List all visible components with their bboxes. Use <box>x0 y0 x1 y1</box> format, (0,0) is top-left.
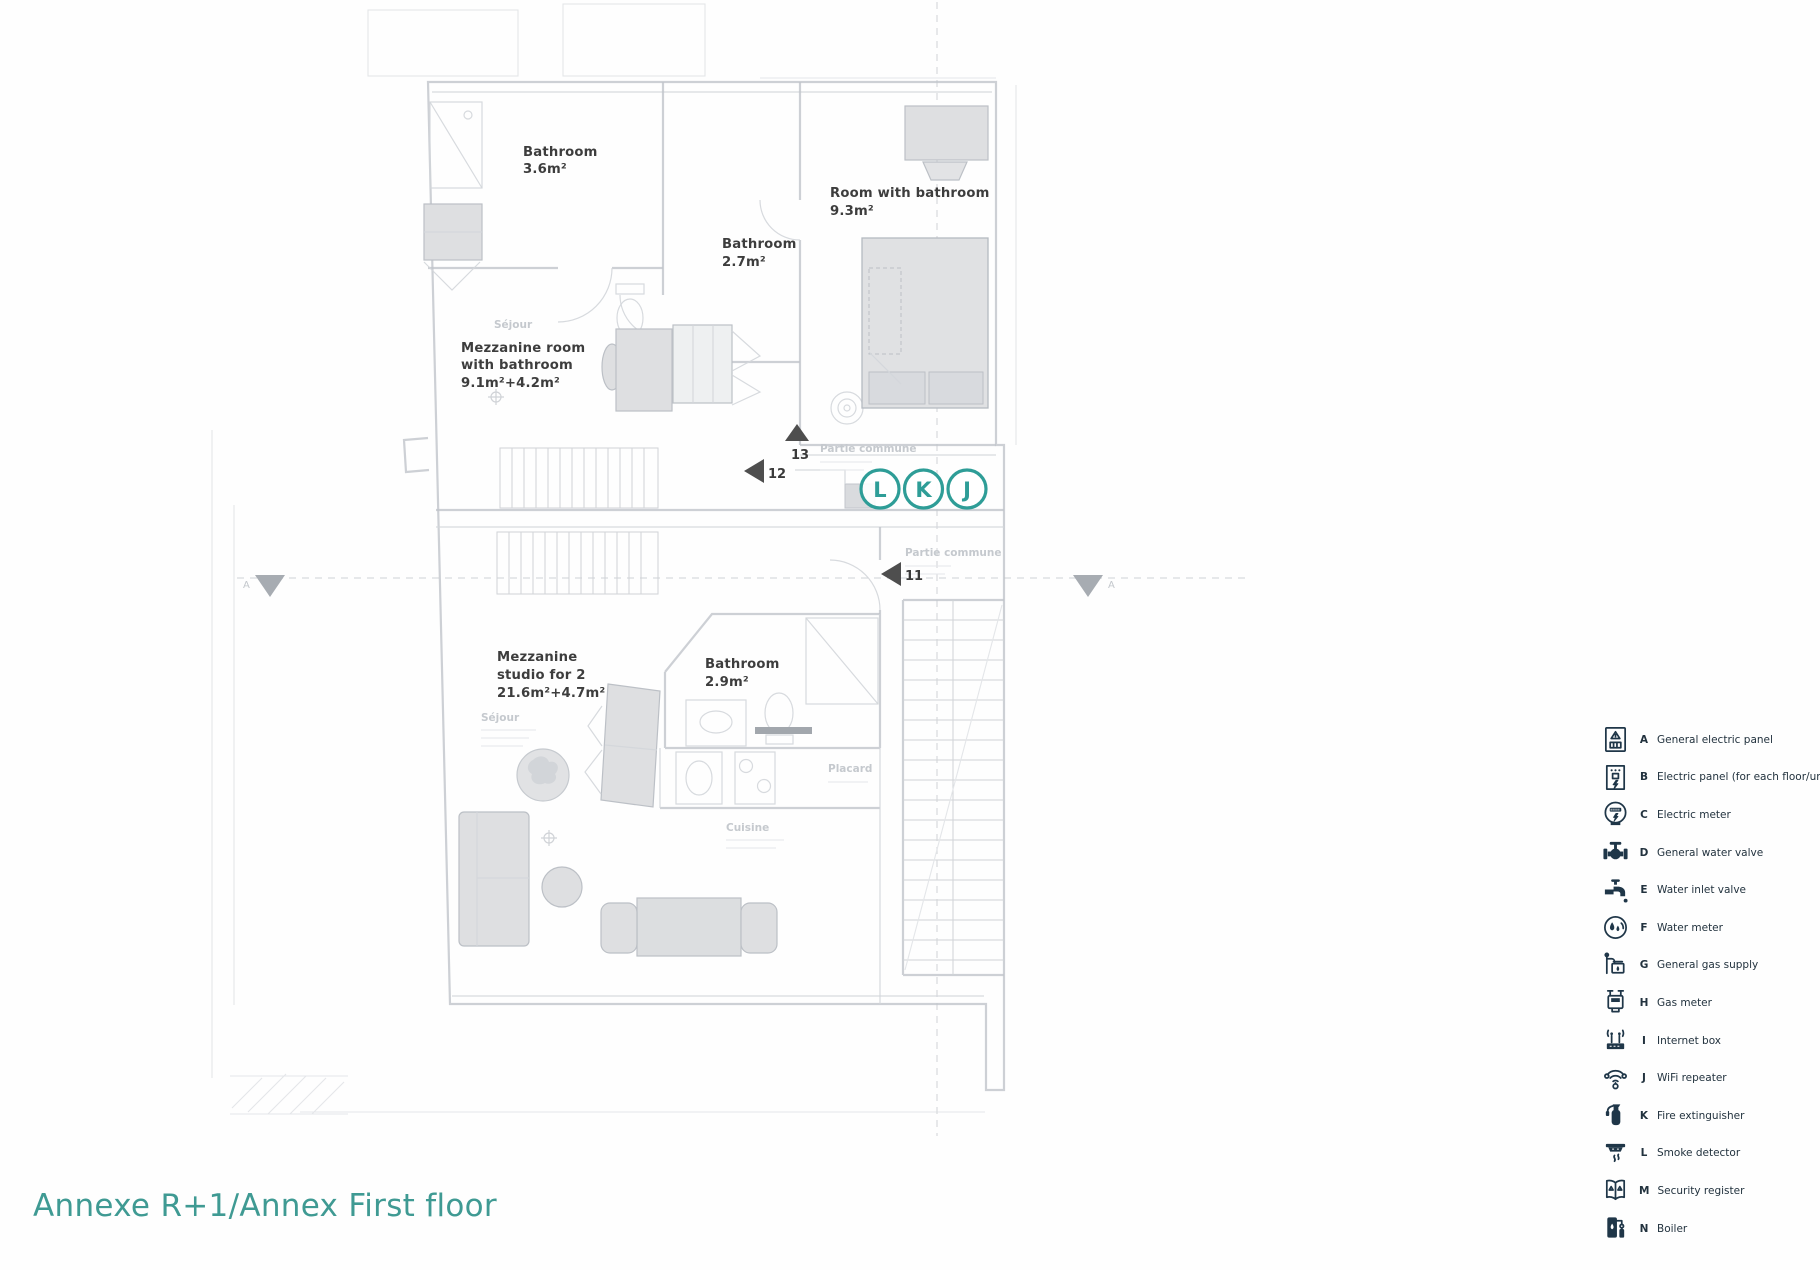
legend-letter: A <box>1639 734 1649 746</box>
axis-lines <box>237 2 1250 1136</box>
room-label-room-with-bathroom: Room with bathroom 9.3m² <box>830 186 990 219</box>
staircase-upper <box>500 448 658 508</box>
dining-table-and-chairs <box>601 898 777 956</box>
rug-with-armchair <box>517 749 569 801</box>
wifi-repeater-icon <box>1598 1064 1632 1093</box>
desk-and-bed-mezzanine-room <box>602 325 760 411</box>
legend-row-fire-extinguisher: K Fire extinguisher <box>1598 1097 1813 1135</box>
legend-letter: E <box>1639 884 1649 896</box>
fire-extinguisher-icon <box>1598 1101 1632 1130</box>
legend-label: WiFi repeater <box>1657 1072 1727 1084</box>
legend-label: Boiler <box>1657 1223 1687 1235</box>
legend-letter: I <box>1639 1035 1649 1047</box>
svg-text:studio for 2: studio for 2 <box>497 668 586 683</box>
marker-12-label: 12 <box>768 467 786 482</box>
general-gas-supply-icon <box>1598 951 1632 980</box>
sofa <box>459 812 529 946</box>
electric-panel-icon <box>1598 763 1632 792</box>
legend-label: Fire extinguisher <box>1657 1110 1744 1122</box>
legend-row-gas-meter: H Gas meter <box>1598 984 1813 1022</box>
svg-text:L: L <box>873 478 886 502</box>
svg-text:21.6m²+4.7m²: 21.6m²+4.7m² <box>497 686 605 701</box>
marker-11-triangle-icon <box>881 562 901 586</box>
faint-label-sejour-1: Séjour <box>494 319 533 331</box>
side-stool <box>542 867 582 907</box>
legend-row-general-water-valve: D General water valve <box>1598 834 1813 872</box>
faint-label-partie-commune-1: Partie commune <box>820 443 916 455</box>
marker-13-triangle-icon <box>785 424 809 441</box>
svg-text:K: K <box>915 478 932 502</box>
marker-12-triangle-icon <box>744 459 764 483</box>
legend-label: General gas supply <box>1657 959 1758 971</box>
legend-label: Water inlet valve <box>1657 884 1746 896</box>
legend-letter: B <box>1639 771 1649 783</box>
svg-text:Mezzanine room: Mezzanine room <box>461 341 585 356</box>
legend-row-general-electric-panel: A General electric panel <box>1598 721 1813 759</box>
device-markers: L K J <box>861 470 986 508</box>
staircase-lower <box>497 532 658 594</box>
device-marker-L: L <box>861 470 899 508</box>
legend-row-water-meter: F Water meter <box>1598 909 1813 947</box>
general-water-valve-icon <box>1598 838 1632 867</box>
legend-label: Internet box <box>1657 1035 1721 1047</box>
floor-plan-page: Partie commune Partie commune Séjour Séj… <box>0 0 1820 1270</box>
room-label-bathroom-lower: Bathroom 2.9m² <box>705 657 780 690</box>
floor-plan-drawing: Partie commune Partie commune Séjour Séj… <box>0 0 1820 1270</box>
legend-letter: G <box>1639 959 1649 971</box>
water-meter-icon <box>1598 913 1632 942</box>
round-stool <box>831 392 863 424</box>
smoke-detector-icon <box>1598 1139 1632 1168</box>
legend-row-internet-box: I Internet box <box>1598 1022 1813 1060</box>
room-labels: Bathroom 3.6m² Bathroom 2.7m² Room with … <box>461 145 990 701</box>
legend-letter: K <box>1639 1110 1649 1122</box>
svg-text:Room with bathroom: Room with bathroom <box>830 186 990 201</box>
legend-label: Water meter <box>1657 922 1723 934</box>
section-label-right: A <box>1108 580 1115 591</box>
legend-letter: N <box>1639 1223 1649 1235</box>
legend-row-wifi-repeater: J WiFi repeater <box>1598 1059 1813 1097</box>
angled-bed <box>585 684 660 807</box>
legend-row-security-register: M Security register <box>1598 1172 1813 1210</box>
legend-row-general-gas-supply: G General gas supply <box>1598 947 1813 985</box>
marker-11-label: 11 <box>905 569 923 584</box>
kitchen-counter <box>676 752 775 804</box>
shower-upper-left <box>430 102 482 188</box>
faint-label-cuisine: Cuisine <box>726 822 769 834</box>
legend-row-boiler: N Boiler <box>1598 1210 1813 1248</box>
room-label-mezzanine-studio: Mezzanine studio for 2 21.6m²+4.7m² <box>497 650 605 701</box>
svg-text:2.7m²: 2.7m² <box>722 255 766 270</box>
svg-text:Bathroom: Bathroom <box>523 145 598 160</box>
legend-row-electric-meter: C Electric meter <box>1598 796 1813 834</box>
electric-meter-icon <box>1598 800 1632 829</box>
legend-label: Electric panel (for each floor/unit) <box>1657 771 1820 783</box>
room-label-mezzanine-room: Mezzanine room with bathroom 9.1m²+4.2m² <box>461 341 585 391</box>
svg-text:9.1m²+4.2m²: 9.1m²+4.2m² <box>461 376 560 391</box>
legend: A General electric panel B Electric pane… <box>1598 721 1813 1247</box>
svg-text:with bathroom: with bathroom <box>461 358 573 373</box>
bed-room-with-bathroom <box>862 238 988 408</box>
device-marker-K: K <box>905 470 943 508</box>
page-title: Annexe R+1/Annex First floor <box>33 1188 497 1224</box>
legend-letter: M <box>1639 1185 1649 1197</box>
legend-label: General electric panel <box>1657 734 1773 746</box>
svg-text:3.6m²: 3.6m² <box>523 162 567 177</box>
svg-text:Mezzanine: Mezzanine <box>497 650 577 665</box>
legend-row-electric-panel: B Electric panel (for each floor/unit) <box>1598 759 1813 797</box>
general-electric-panel-icon <box>1598 725 1632 754</box>
legend-label: Smoke detector <box>1657 1147 1740 1159</box>
legend-letter: H <box>1639 997 1649 1009</box>
legend-letter: C <box>1639 809 1649 821</box>
room-label-bathroom-upper-left: Bathroom 3.6m² <box>523 145 598 177</box>
shelf <box>755 727 812 734</box>
marker-13-label: 13 <box>791 448 809 463</box>
faint-label-placard: Placard <box>828 763 872 775</box>
legend-letter: L <box>1639 1147 1649 1159</box>
legend-label: Electric meter <box>1657 809 1731 821</box>
section-arrow-left-icon <box>255 575 285 597</box>
svg-text:Bathroom: Bathroom <box>705 657 780 672</box>
staircase-right <box>903 600 1004 975</box>
legend-letter: J <box>1639 1072 1649 1084</box>
water-inlet-valve-icon <box>1598 876 1632 905</box>
device-marker-J: J <box>948 470 986 508</box>
legend-letter: D <box>1639 847 1649 859</box>
security-register-icon <box>1598 1176 1632 1205</box>
section-arrow-right-icon <box>1073 575 1103 597</box>
legend-row-smoke-detector: L Smoke detector <box>1598 1135 1813 1173</box>
legend-label: Gas meter <box>1657 997 1712 1009</box>
faint-label-partie-commune-2: Partie commune <box>905 547 1001 559</box>
svg-text:Bathroom: Bathroom <box>722 237 797 252</box>
svg-text:J: J <box>961 478 971 502</box>
faint-label-sejour-2: Séjour <box>481 712 520 724</box>
legend-letter: F <box>1639 922 1649 934</box>
room-label-bathroom-upper-middle: Bathroom 2.7m² <box>722 237 797 270</box>
legend-label: Security register <box>1657 1185 1744 1197</box>
internet-box-icon <box>1598 1026 1632 1055</box>
svg-text:2.9m²: 2.9m² <box>705 675 749 690</box>
svg-text:9.3m²: 9.3m² <box>830 204 874 219</box>
legend-row-water-inlet-valve: E Water inlet valve <box>1598 871 1813 909</box>
boiler-icon <box>1598 1214 1632 1243</box>
gas-meter-icon <box>1598 988 1632 1017</box>
desk-room-with-bathroom <box>905 106 988 180</box>
legend-label: General water valve <box>1657 847 1763 859</box>
section-label-left: A <box>243 580 250 591</box>
